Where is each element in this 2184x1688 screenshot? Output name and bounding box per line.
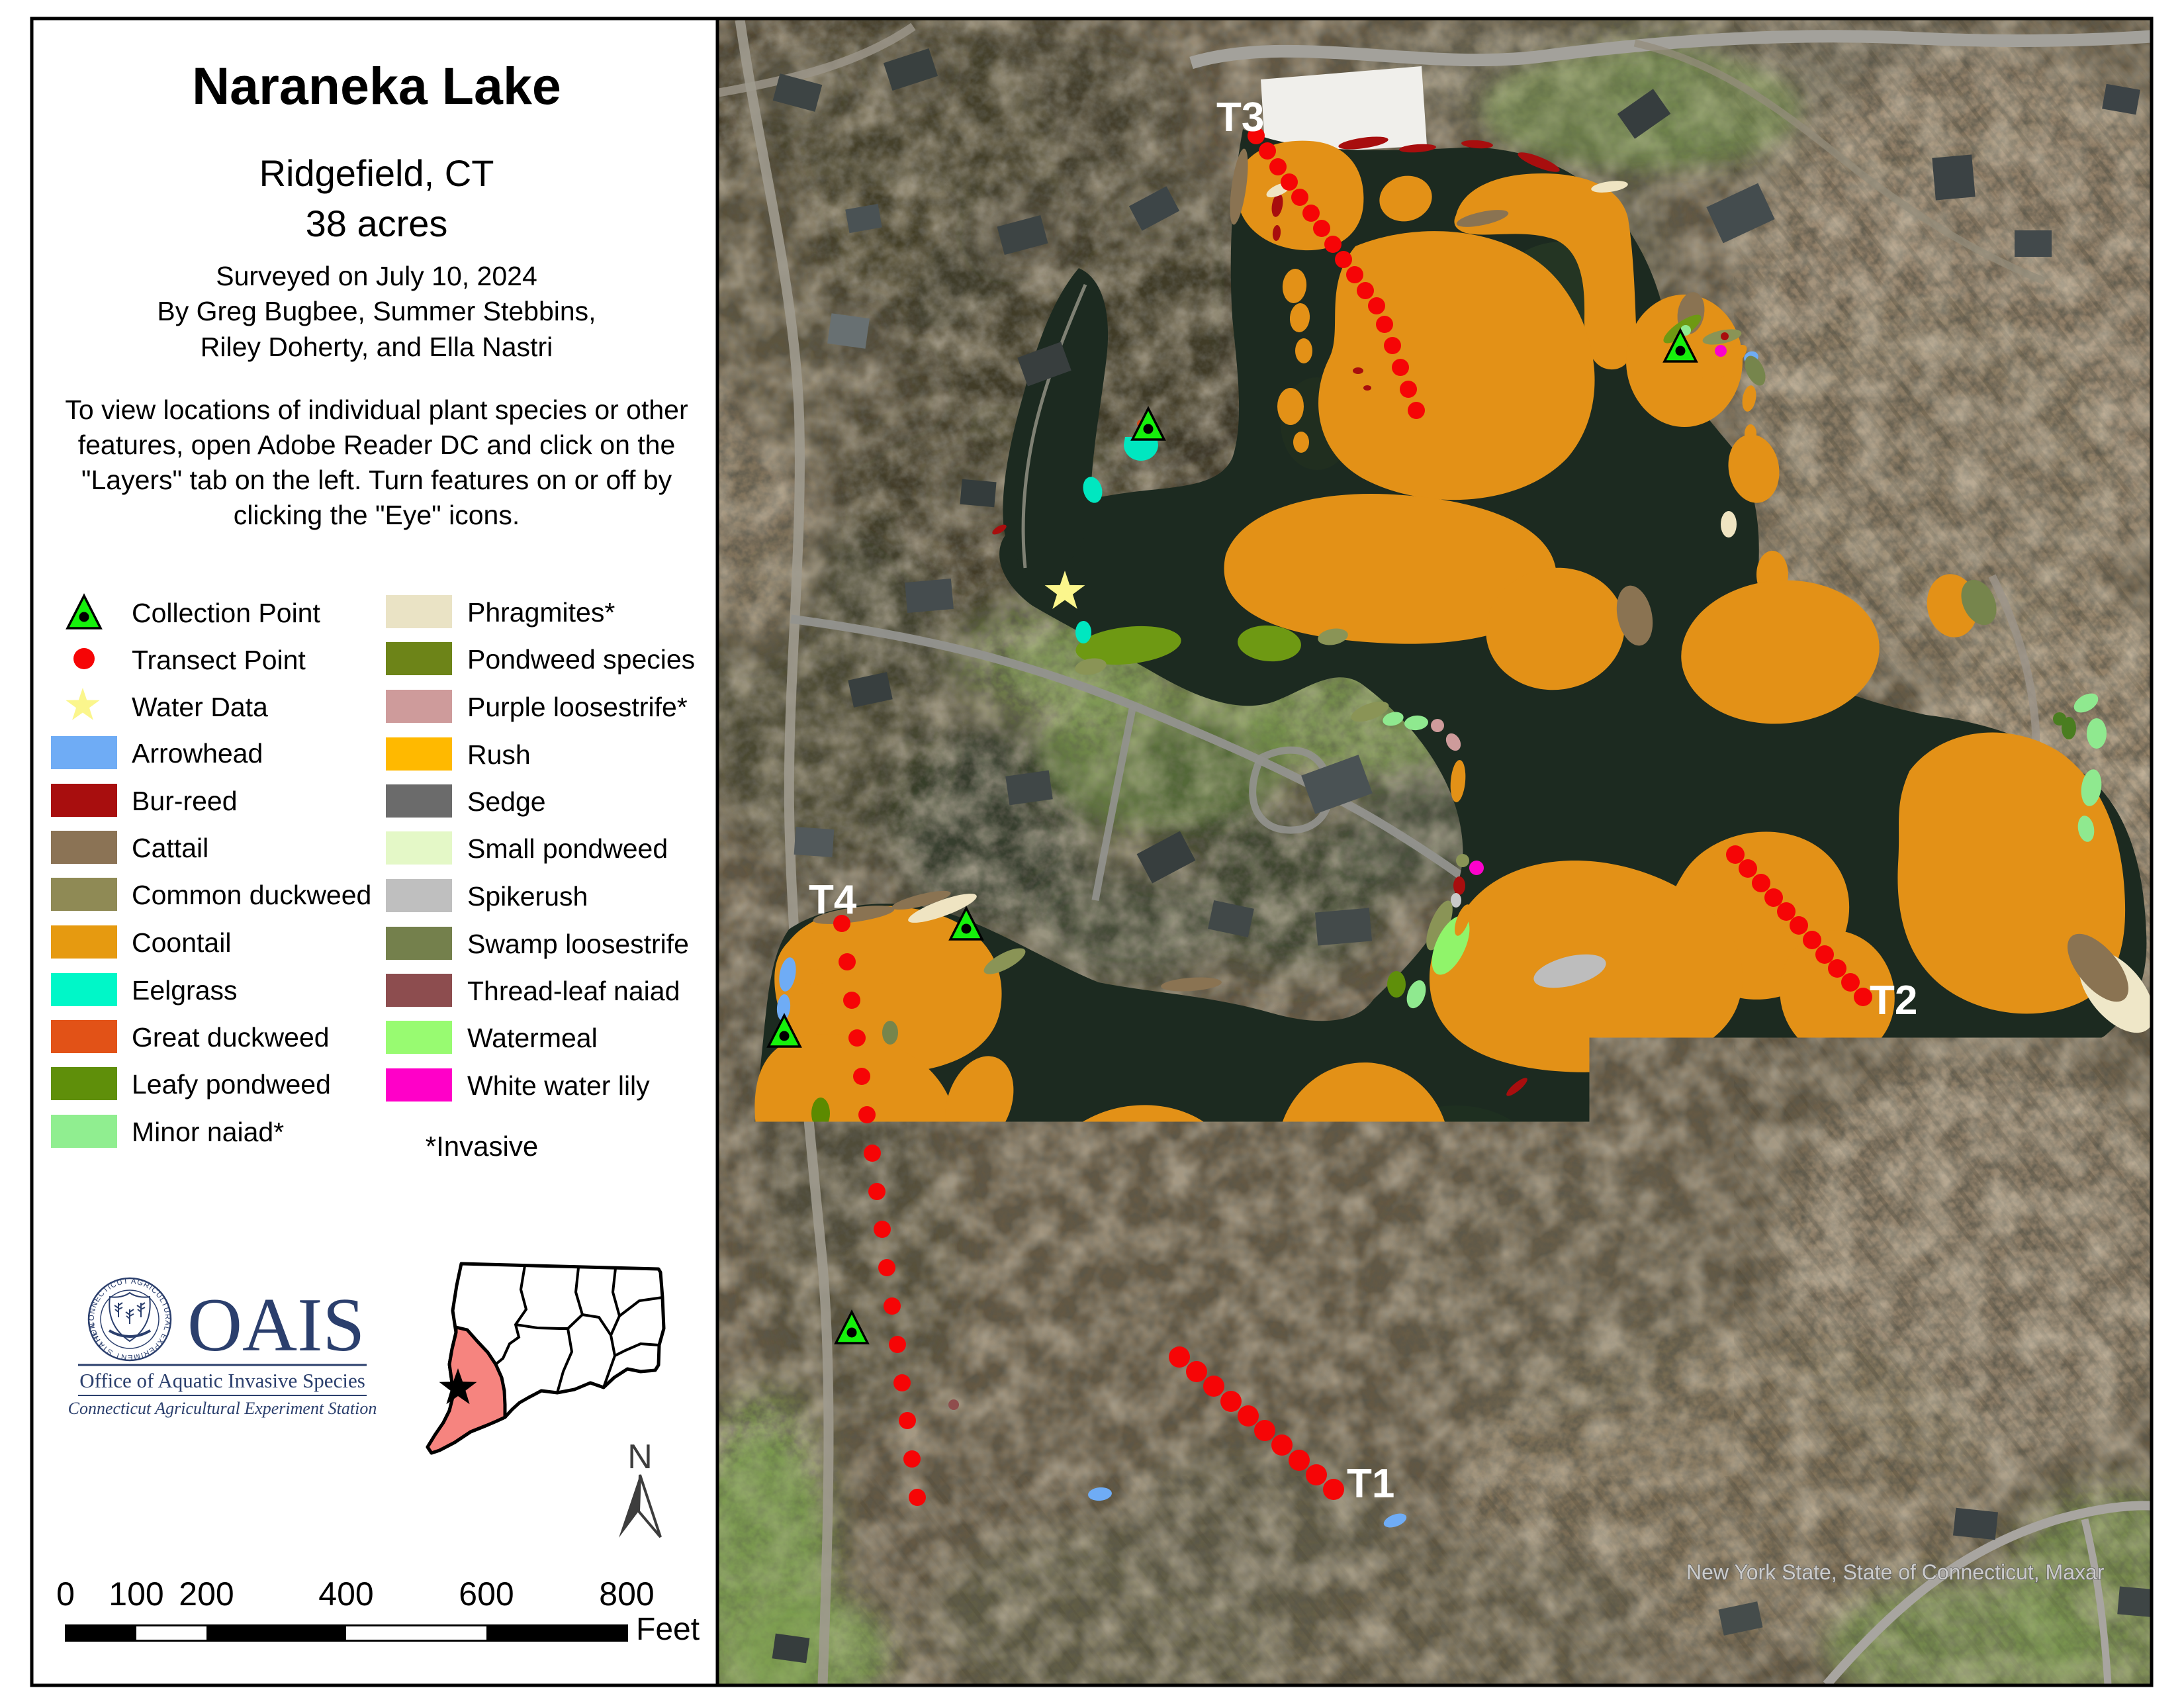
svg-text:Riley Doherty, and Ella Nastri: Riley Doherty, and Ella Nastri: [201, 332, 553, 362]
svg-text:Arrowhead: Arrowhead: [132, 738, 263, 769]
svg-text:Eelgrass: Eelgrass: [132, 975, 238, 1006]
svg-text:*Invasive: *Invasive: [426, 1131, 538, 1162]
svg-text:Phragmites*: Phragmites*: [467, 597, 615, 628]
svg-text:Spikerush: Spikerush: [467, 881, 588, 912]
svg-text:"Layers" tab on the left. Turn: "Layers" tab on the left. Turn features …: [81, 465, 672, 495]
svg-text:Collection Point: Collection Point: [132, 598, 320, 628]
svg-text:Coontail: Coontail: [132, 927, 231, 958]
svg-text:Watermeal: Watermeal: [467, 1023, 598, 1053]
svg-text:clicking the "Eye" icons.: clicking the "Eye" icons.: [234, 500, 520, 530]
svg-text:Pondweed species: Pondweed species: [467, 644, 695, 675]
svg-text:New York State, State of Conne: New York State, State of Connecticut, Ma…: [1686, 1560, 2105, 1584]
svg-text:Leafy pondweed: Leafy pondweed: [132, 1069, 331, 1100]
svg-text:Small pondweed: Small pondweed: [467, 833, 668, 864]
svg-text:T3: T3: [1216, 95, 1264, 140]
svg-text:By Greg Bugbee, Summer Stebbin: By Greg Bugbee, Summer Stebbins,: [157, 296, 596, 326]
svg-text:800: 800: [599, 1575, 654, 1613]
svg-text:Naraneka Lake: Naraneka Lake: [192, 56, 561, 115]
svg-text:T1: T1: [1347, 1461, 1394, 1507]
svg-text:T2: T2: [1870, 978, 1917, 1023]
svg-text:Connecticut Agricultural Exper: Connecticut Agricultural Experiment Stat…: [68, 1399, 377, 1418]
svg-text:Cattail: Cattail: [132, 833, 208, 863]
svg-text:Purple loosestrife*: Purple loosestrife*: [467, 692, 688, 722]
svg-text:600: 600: [459, 1575, 514, 1613]
svg-text:0: 0: [56, 1575, 75, 1613]
svg-text:100: 100: [109, 1575, 163, 1613]
svg-text:Swamp loosestrife: Swamp loosestrife: [467, 929, 689, 959]
svg-text:Ridgefield, CT: Ridgefield, CT: [259, 152, 494, 194]
svg-text:Water Data: Water Data: [132, 692, 268, 722]
svg-text:Surveyed on July 10, 2024: Surveyed on July 10, 2024: [216, 261, 537, 291]
svg-text:Transect Point: Transect Point: [132, 645, 306, 675]
svg-text:Bur-reed: Bur-reed: [132, 786, 238, 816]
svg-text:Minor naiad*: Minor naiad*: [132, 1117, 284, 1147]
svg-text:T4: T4: [809, 877, 857, 923]
svg-text:Feet: Feet: [636, 1612, 700, 1647]
svg-text:features, open Adobe Reader DC: features, open Adobe Reader DC and click…: [78, 430, 676, 460]
svg-text:OAIS: OAIS: [187, 1283, 365, 1367]
svg-text:Great duckweed: Great duckweed: [132, 1022, 330, 1053]
svg-text:200: 200: [179, 1575, 234, 1613]
svg-text:Rush: Rush: [467, 739, 531, 770]
svg-text:To view locations of individua: To view locations of individual plant sp…: [65, 395, 688, 425]
svg-text:400: 400: [318, 1575, 373, 1613]
svg-text:White water lily: White water lily: [467, 1070, 650, 1101]
svg-text:Office of Aquatic Invasive Spe: Office of Aquatic Invasive Species: [79, 1369, 365, 1392]
svg-text:38 acres: 38 acres: [306, 203, 448, 244]
svg-text:Sedge: Sedge: [467, 786, 546, 817]
svg-text:Common duckweed: Common duckweed: [132, 880, 371, 910]
svg-text:N: N: [627, 1438, 653, 1476]
svg-text:Thread-leaf naiad: Thread-leaf naiad: [467, 976, 680, 1006]
